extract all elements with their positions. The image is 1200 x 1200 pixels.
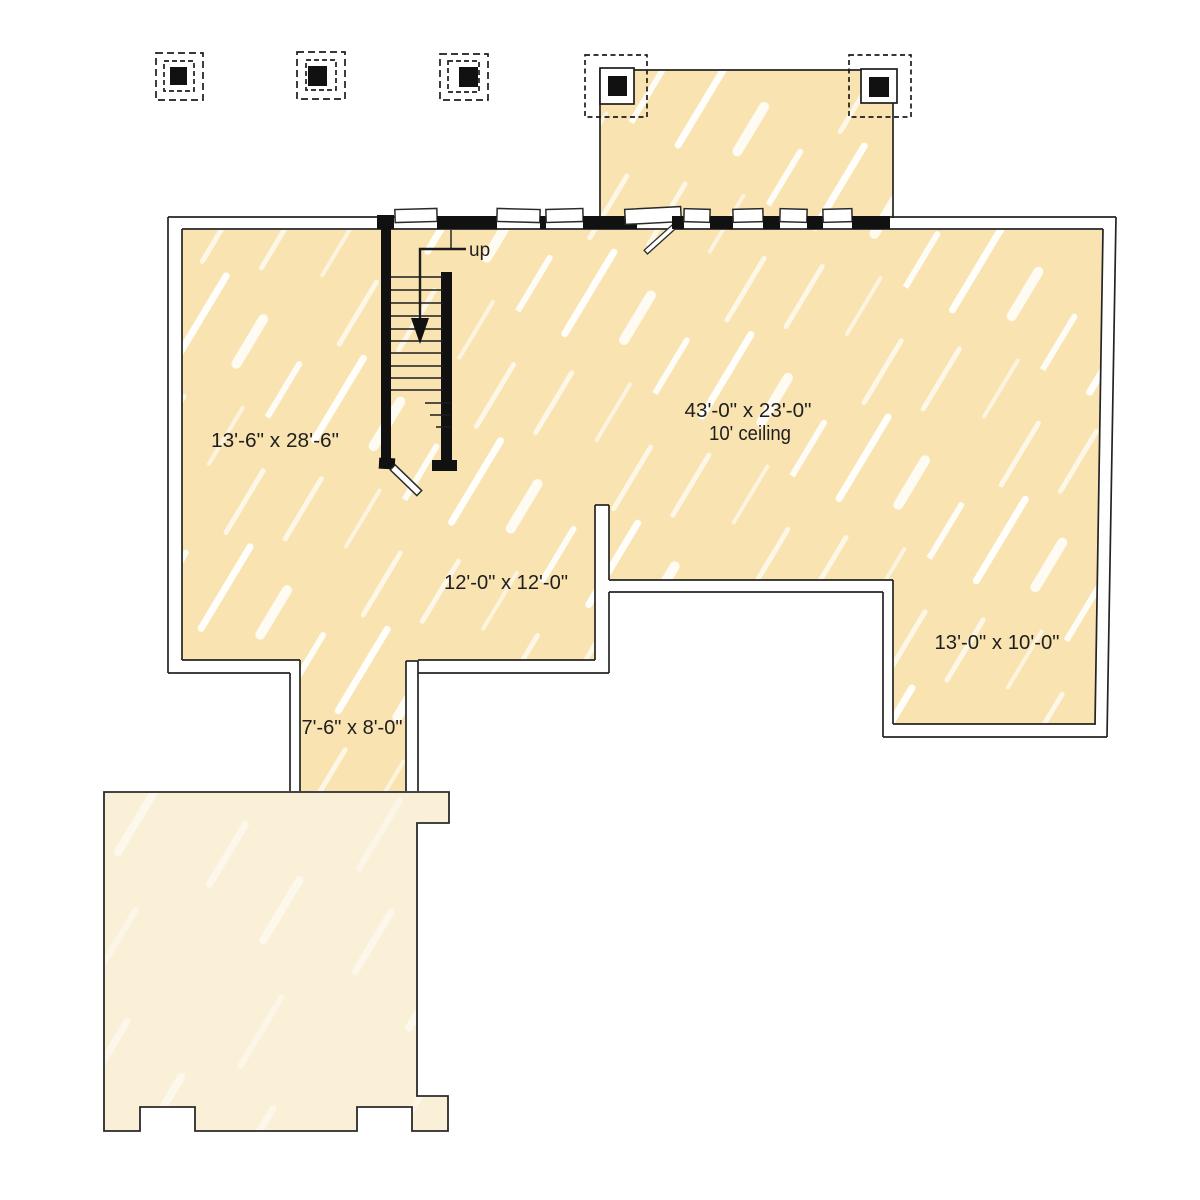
svg-text:10' ceiling: 10' ceiling: [709, 423, 791, 445]
svg-text:13'-6" x 28'-6": 13'-6" x 28'-6": [211, 430, 339, 452]
svg-text:43'-0" x 23'-0": 43'-0" x 23'-0": [685, 400, 812, 422]
svg-text:7'-6" x 8'-0": 7'-6" x 8'-0": [302, 717, 403, 739]
svg-text:12'-0" x 12'-0": 12'-0" x 12'-0": [444, 572, 568, 594]
svg-text:13'-0" x 10'-0": 13'-0" x 10'-0": [935, 632, 1060, 654]
svg-text:up: up: [469, 240, 490, 261]
